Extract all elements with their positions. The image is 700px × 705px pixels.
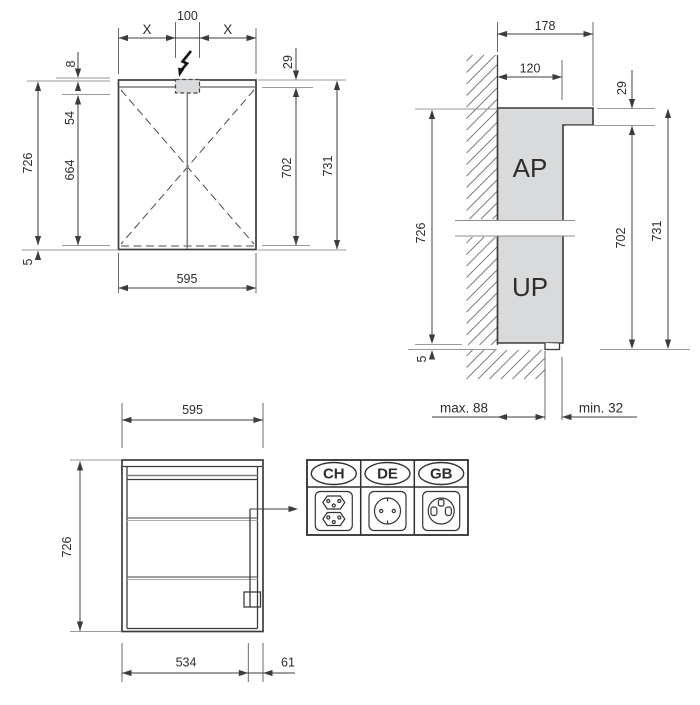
dim-label-5-side: 5 (415, 355, 429, 362)
surface-mount-label: AP (513, 153, 548, 183)
dim-label-54: 54 (63, 111, 77, 125)
socket-panel: CH DE GB (307, 460, 468, 535)
dim-label-731-front: 731 (321, 156, 335, 177)
dim-label-178: 178 (535, 19, 556, 33)
open-view: 595 726 534 61 (60, 403, 296, 682)
de-label: DE (377, 466, 398, 483)
installation-dimensions-drawing: X 100 X 8 54 664 726 5 29 702 731 595 AP… (0, 0, 700, 700)
dim-label-x-left: X (142, 22, 151, 37)
side-view: AP UP (408, 19, 690, 420)
open-cabinet-outline (122, 460, 263, 632)
dim-label-726-open: 726 (60, 537, 74, 558)
dim-label-29-front: 29 (281, 55, 295, 69)
dim-label-702-front: 702 (280, 158, 294, 179)
dim-label-max-88: max. 88 (440, 401, 488, 416)
wall-hatching-lower (467, 237, 498, 345)
wall-hatching (467, 55, 498, 219)
dim-label-8: 8 (64, 60, 78, 67)
dim-label-702-side: 702 (614, 228, 628, 249)
ch-label: CH (323, 466, 345, 483)
technical-drawing-page: X 100 X 8 54 664 726 5 29 702 731 595 AP… (0, 0, 700, 700)
open-reference-lines (70, 460, 121, 632)
dim-label-534: 534 (176, 656, 197, 670)
flush-mount-label: UP (512, 272, 548, 302)
front-view: X 100 X 8 54 664 726 5 29 702 731 595 (21, 9, 346, 293)
floor-hatching (467, 350, 545, 379)
gb-label: GB (430, 466, 453, 483)
dim-label-x-right: X (223, 22, 232, 37)
dim-label-731-side: 731 (650, 221, 664, 242)
lightning-bolt-icon (178, 51, 191, 77)
dim-label-726-front: 726 (21, 153, 35, 174)
open-cabinet-frame (123, 467, 262, 629)
open-extension-lines (122, 403, 263, 682)
dim-label-100: 100 (177, 9, 198, 23)
dim-label-61: 61 (281, 656, 295, 670)
break-lines (455, 221, 575, 237)
bottom-lip (545, 343, 560, 350)
dim-label-726-side: 726 (414, 223, 428, 244)
dim-label-664: 664 (63, 160, 77, 181)
dim-label-29-side: 29 (615, 81, 629, 95)
dim-label-595-front: 595 (177, 272, 198, 286)
electrical-connection-box (176, 80, 200, 94)
dim-label-120: 120 (520, 62, 541, 76)
dim-label-min-32: min. 32 (579, 401, 623, 416)
shelf-lines (127, 518, 258, 580)
dim-label-595-open: 595 (182, 403, 203, 417)
dim-label-5-front: 5 (21, 258, 35, 265)
